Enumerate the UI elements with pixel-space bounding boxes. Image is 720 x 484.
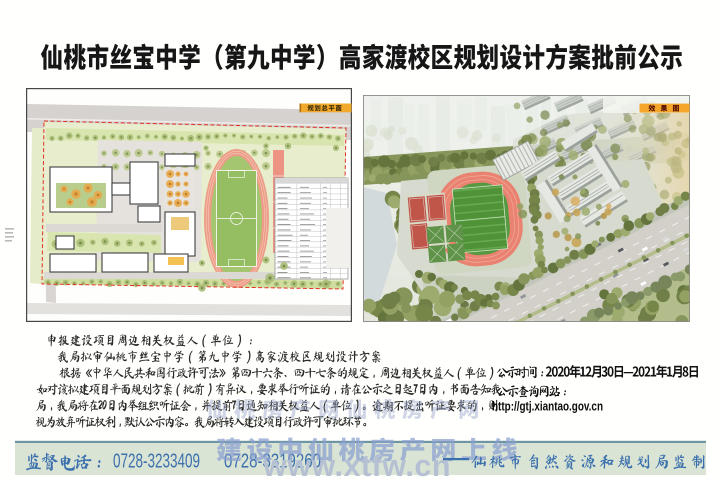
svg-text:www.xtfw.cn: www.xtfw.cn bbox=[262, 449, 451, 479]
svg-text:0728-3233409: 0728-3233409 bbox=[113, 450, 200, 473]
svg-text:http://gtj.xiantao.gov.cn: http://gtj.xiantao.gov.cn bbox=[492, 399, 603, 414]
